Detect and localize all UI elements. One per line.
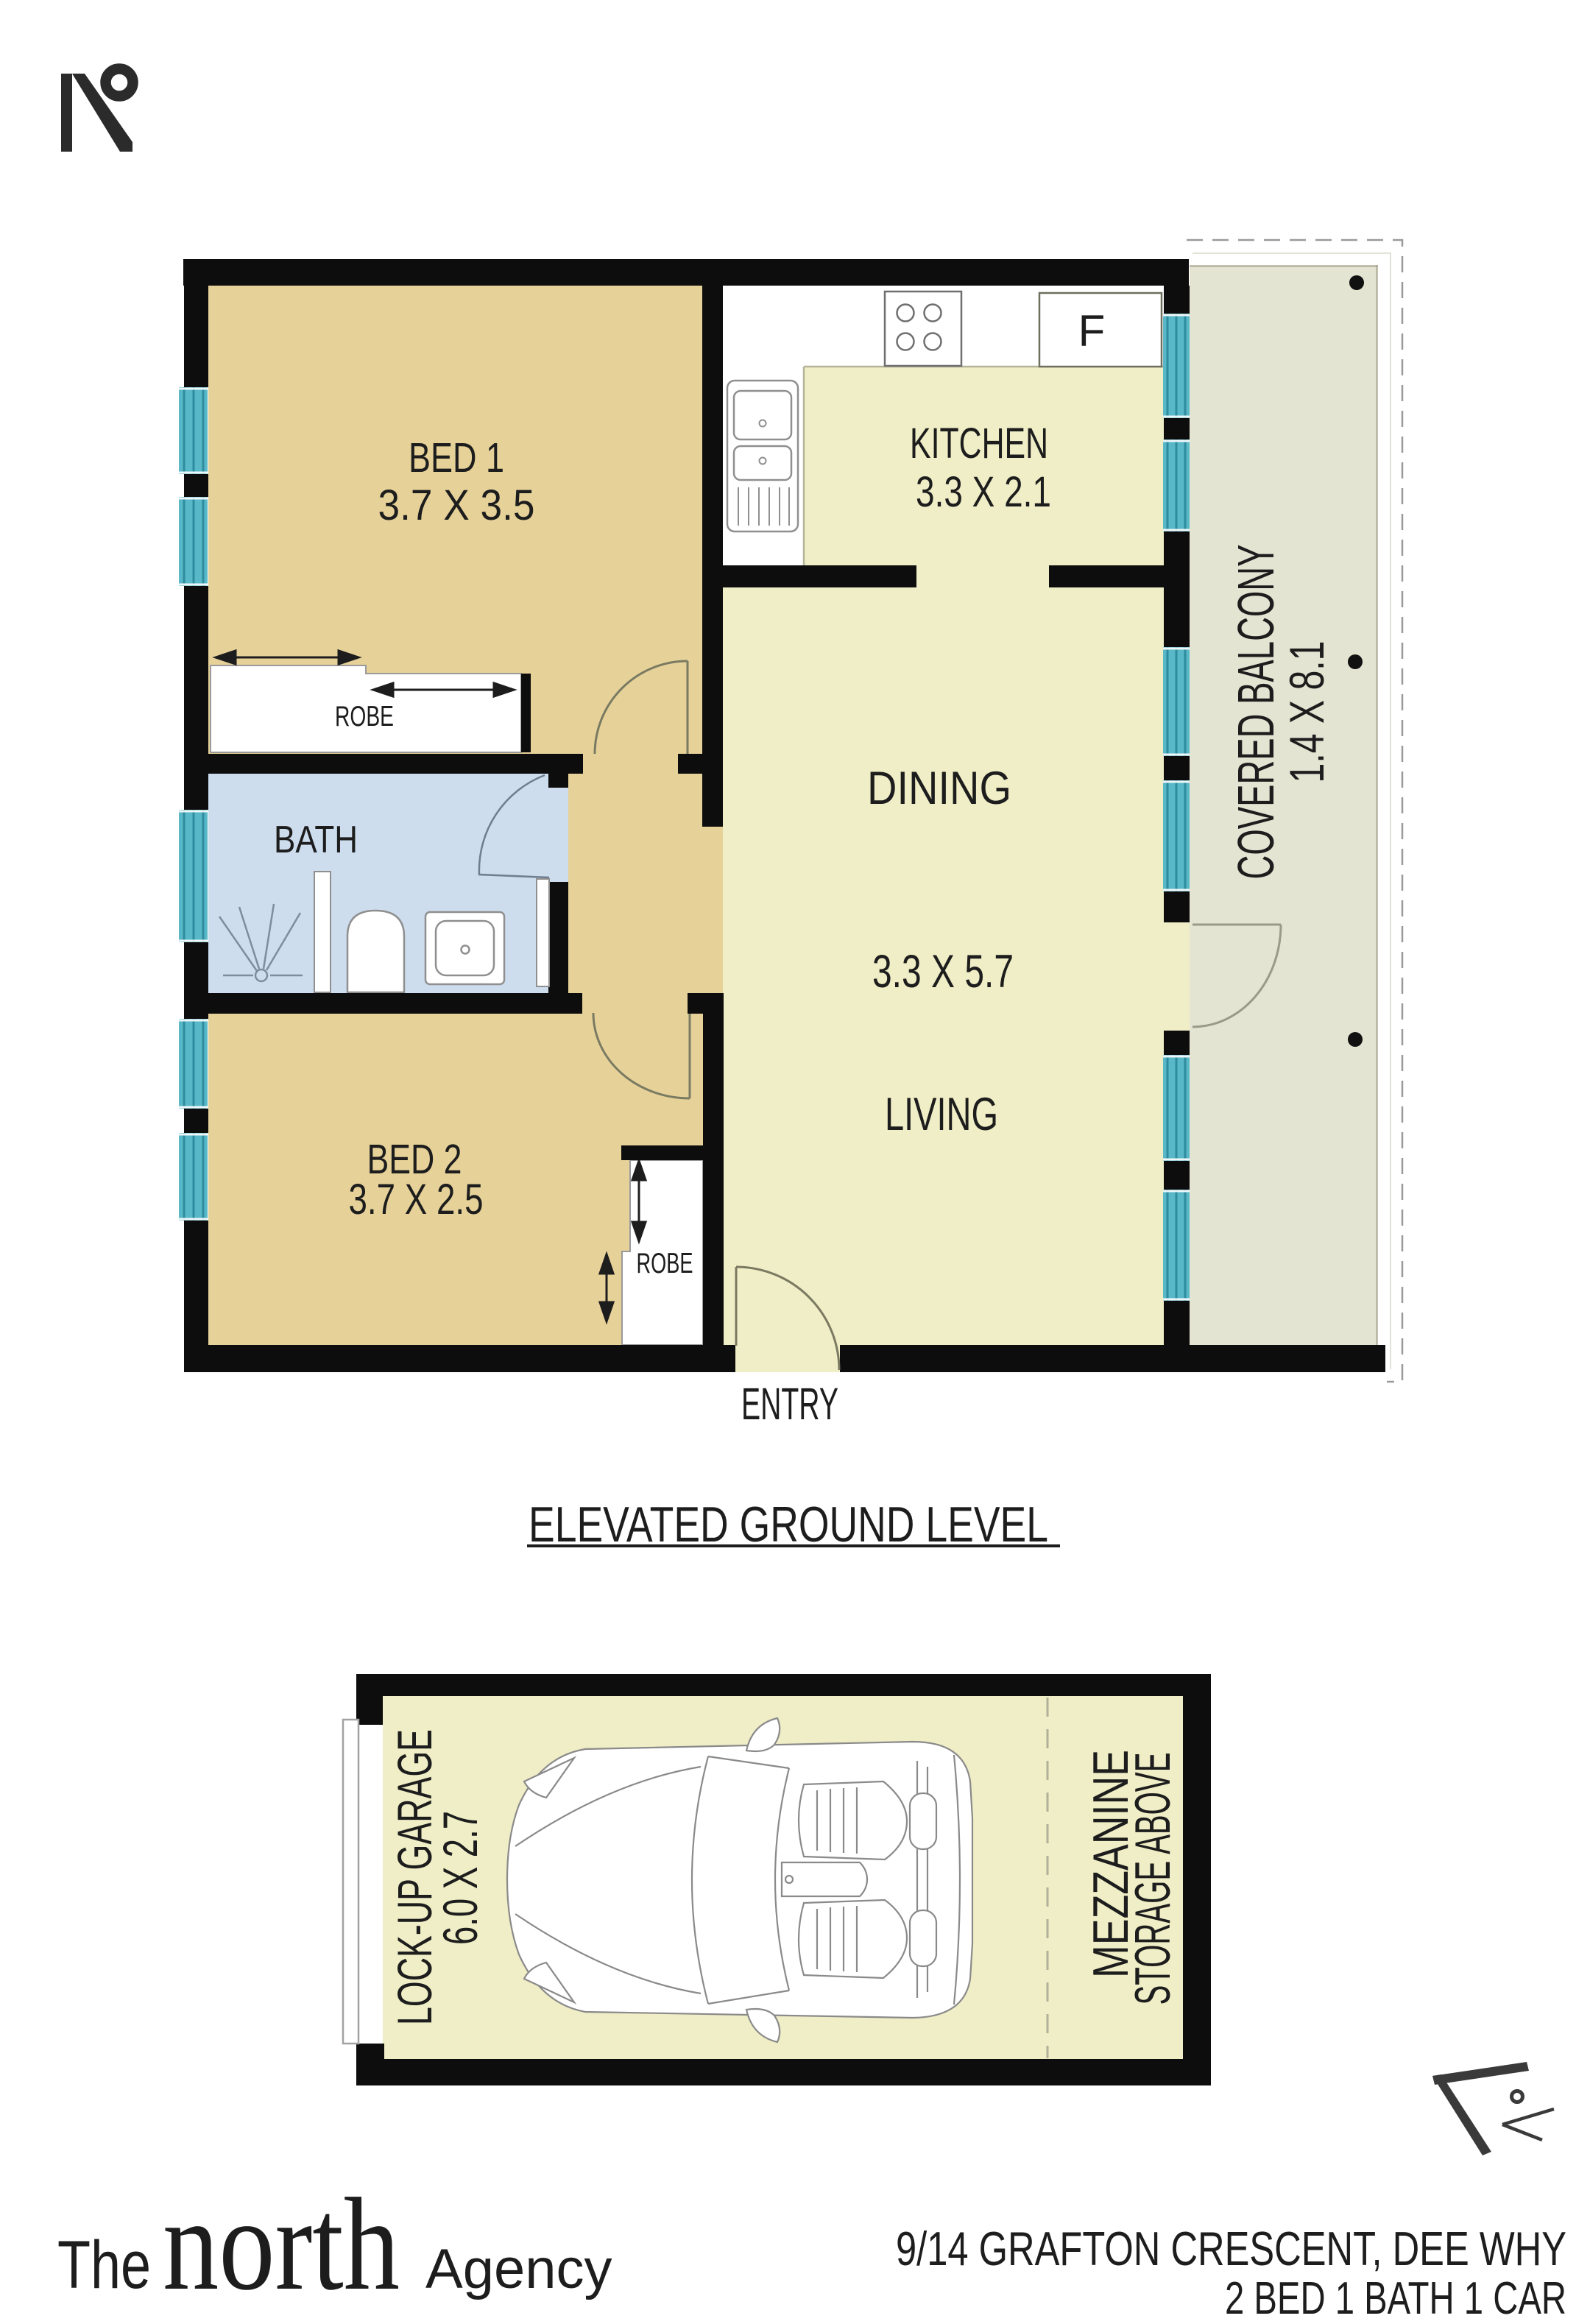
svg-text:1.4 X 8.1: 1.4 X 8.1 <box>1279 641 1334 783</box>
svg-text:ROBE: ROBE <box>335 701 394 732</box>
svg-text:3.7 X 2.5: 3.7 X 2.5 <box>349 1176 484 1223</box>
svg-text:north: north <box>163 2171 400 2317</box>
svg-text:F: F <box>1078 306 1106 356</box>
svg-text:ELEVATED GROUND LEVEL: ELEVATED GROUND LEVEL <box>529 1497 1048 1553</box>
svg-text:KITCHEN: KITCHEN <box>910 420 1048 467</box>
svg-text:BATH: BATH <box>274 819 358 861</box>
svg-text:9/14 GRAFTON CRESCENT, DEE WHY: 9/14 GRAFTON CRESCENT, DEE WHY <box>896 2222 1566 2275</box>
svg-text:DINING: DINING <box>867 763 1011 814</box>
svg-text:BED 1: BED 1 <box>409 434 504 481</box>
svg-text:3.3 X 5.7: 3.3 X 5.7 <box>872 946 1014 997</box>
svg-text:Agency: Agency <box>425 2238 612 2300</box>
svg-text:ENTRY: ENTRY <box>741 1379 838 1429</box>
svg-text:ROBE: ROBE <box>637 1248 693 1279</box>
svg-text:3.7 X 3.5: 3.7 X 3.5 <box>378 481 535 529</box>
svg-text:COVERED BALCONY: COVERED BALCONY <box>1227 545 1285 880</box>
svg-text:3.3 X 2.1: 3.3 X 2.1 <box>916 468 1051 516</box>
svg-text:The: The <box>57 2228 151 2303</box>
svg-text:LIVING: LIVING <box>885 1089 998 1140</box>
svg-text:2 BED 1 BATH 1 CAR: 2 BED 1 BATH 1 CAR <box>1225 2273 1566 2324</box>
svg-text:6.0 X 2.7: 6.0 X 2.7 <box>433 1811 487 1945</box>
svg-text:STORAGE ABOVE: STORAGE ABOVE <box>1125 1753 1181 2005</box>
